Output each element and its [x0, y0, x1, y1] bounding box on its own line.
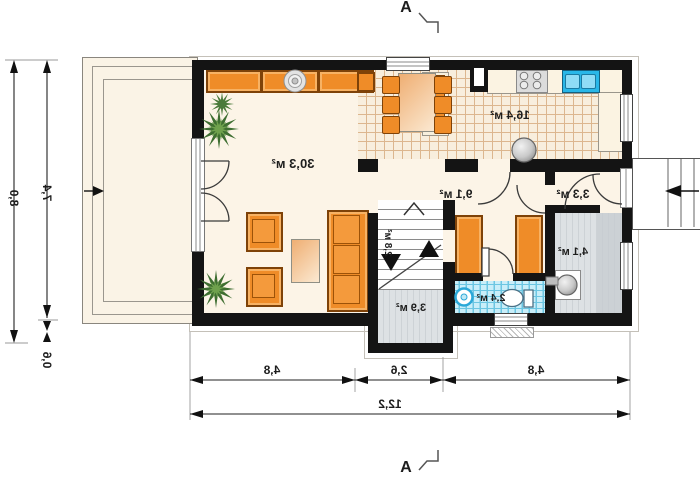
plant-top	[199, 92, 239, 149]
bathroom-door-leaf	[482, 248, 489, 276]
bathroom-door-arc	[488, 249, 513, 274]
section-mark-bottom	[419, 450, 438, 470]
ceiling-lamp	[284, 70, 306, 92]
stove-burners	[520, 72, 541, 89]
room-label-bathroom: 2,4 м²	[461, 291, 521, 305]
room-label-utility: 4,1 м²	[543, 245, 603, 259]
utility-boiler	[557, 275, 577, 295]
utility-boiler-pipe	[546, 277, 558, 285]
dim-left-main: 7,4	[40, 173, 54, 213]
terrace-door-arc-upper	[201, 161, 229, 189]
dim-bottom-seg1: 4,8	[252, 363, 292, 377]
room-label-living: 30,3 м²	[263, 157, 323, 171]
dim-left-total: 8,0	[7, 178, 21, 218]
room-label-entry: 3,9 м²	[381, 301, 441, 315]
hall-vestibule-door-arc	[517, 185, 545, 213]
stairs-chevron	[404, 203, 424, 215]
kitchen-water-heater	[512, 138, 536, 162]
room-label-vestibule: 3,3 м²	[543, 187, 603, 201]
dim-bottom-total: 12,2	[370, 397, 410, 411]
section-marker-bottom: A	[391, 461, 421, 475]
terrace-direction-arrow	[84, 186, 104, 196]
section-marker-top: A	[391, 1, 421, 15]
room-label-hall: 9,1 м²	[426, 187, 486, 201]
floor-plan-canvas: 30,3 м² 16,4 м² 9,1 м² 3,3 м² 4,1 м² 2,4…	[0, 0, 700, 483]
dim-bottom-seg3: 4,8	[516, 363, 556, 377]
dim-bottom-seg2: 2,6	[379, 363, 419, 377]
section-mark-top	[419, 13, 438, 33]
terrace-door-arc-lower	[201, 193, 229, 221]
dim-left-small: 0,6	[40, 340, 54, 380]
plant-bottom	[197, 270, 235, 308]
room-label-stairs: 2,8 м²	[380, 221, 394, 265]
plan-overlay	[0, 0, 700, 483]
room-label-kitchen: 16,4 м²	[480, 108, 540, 122]
